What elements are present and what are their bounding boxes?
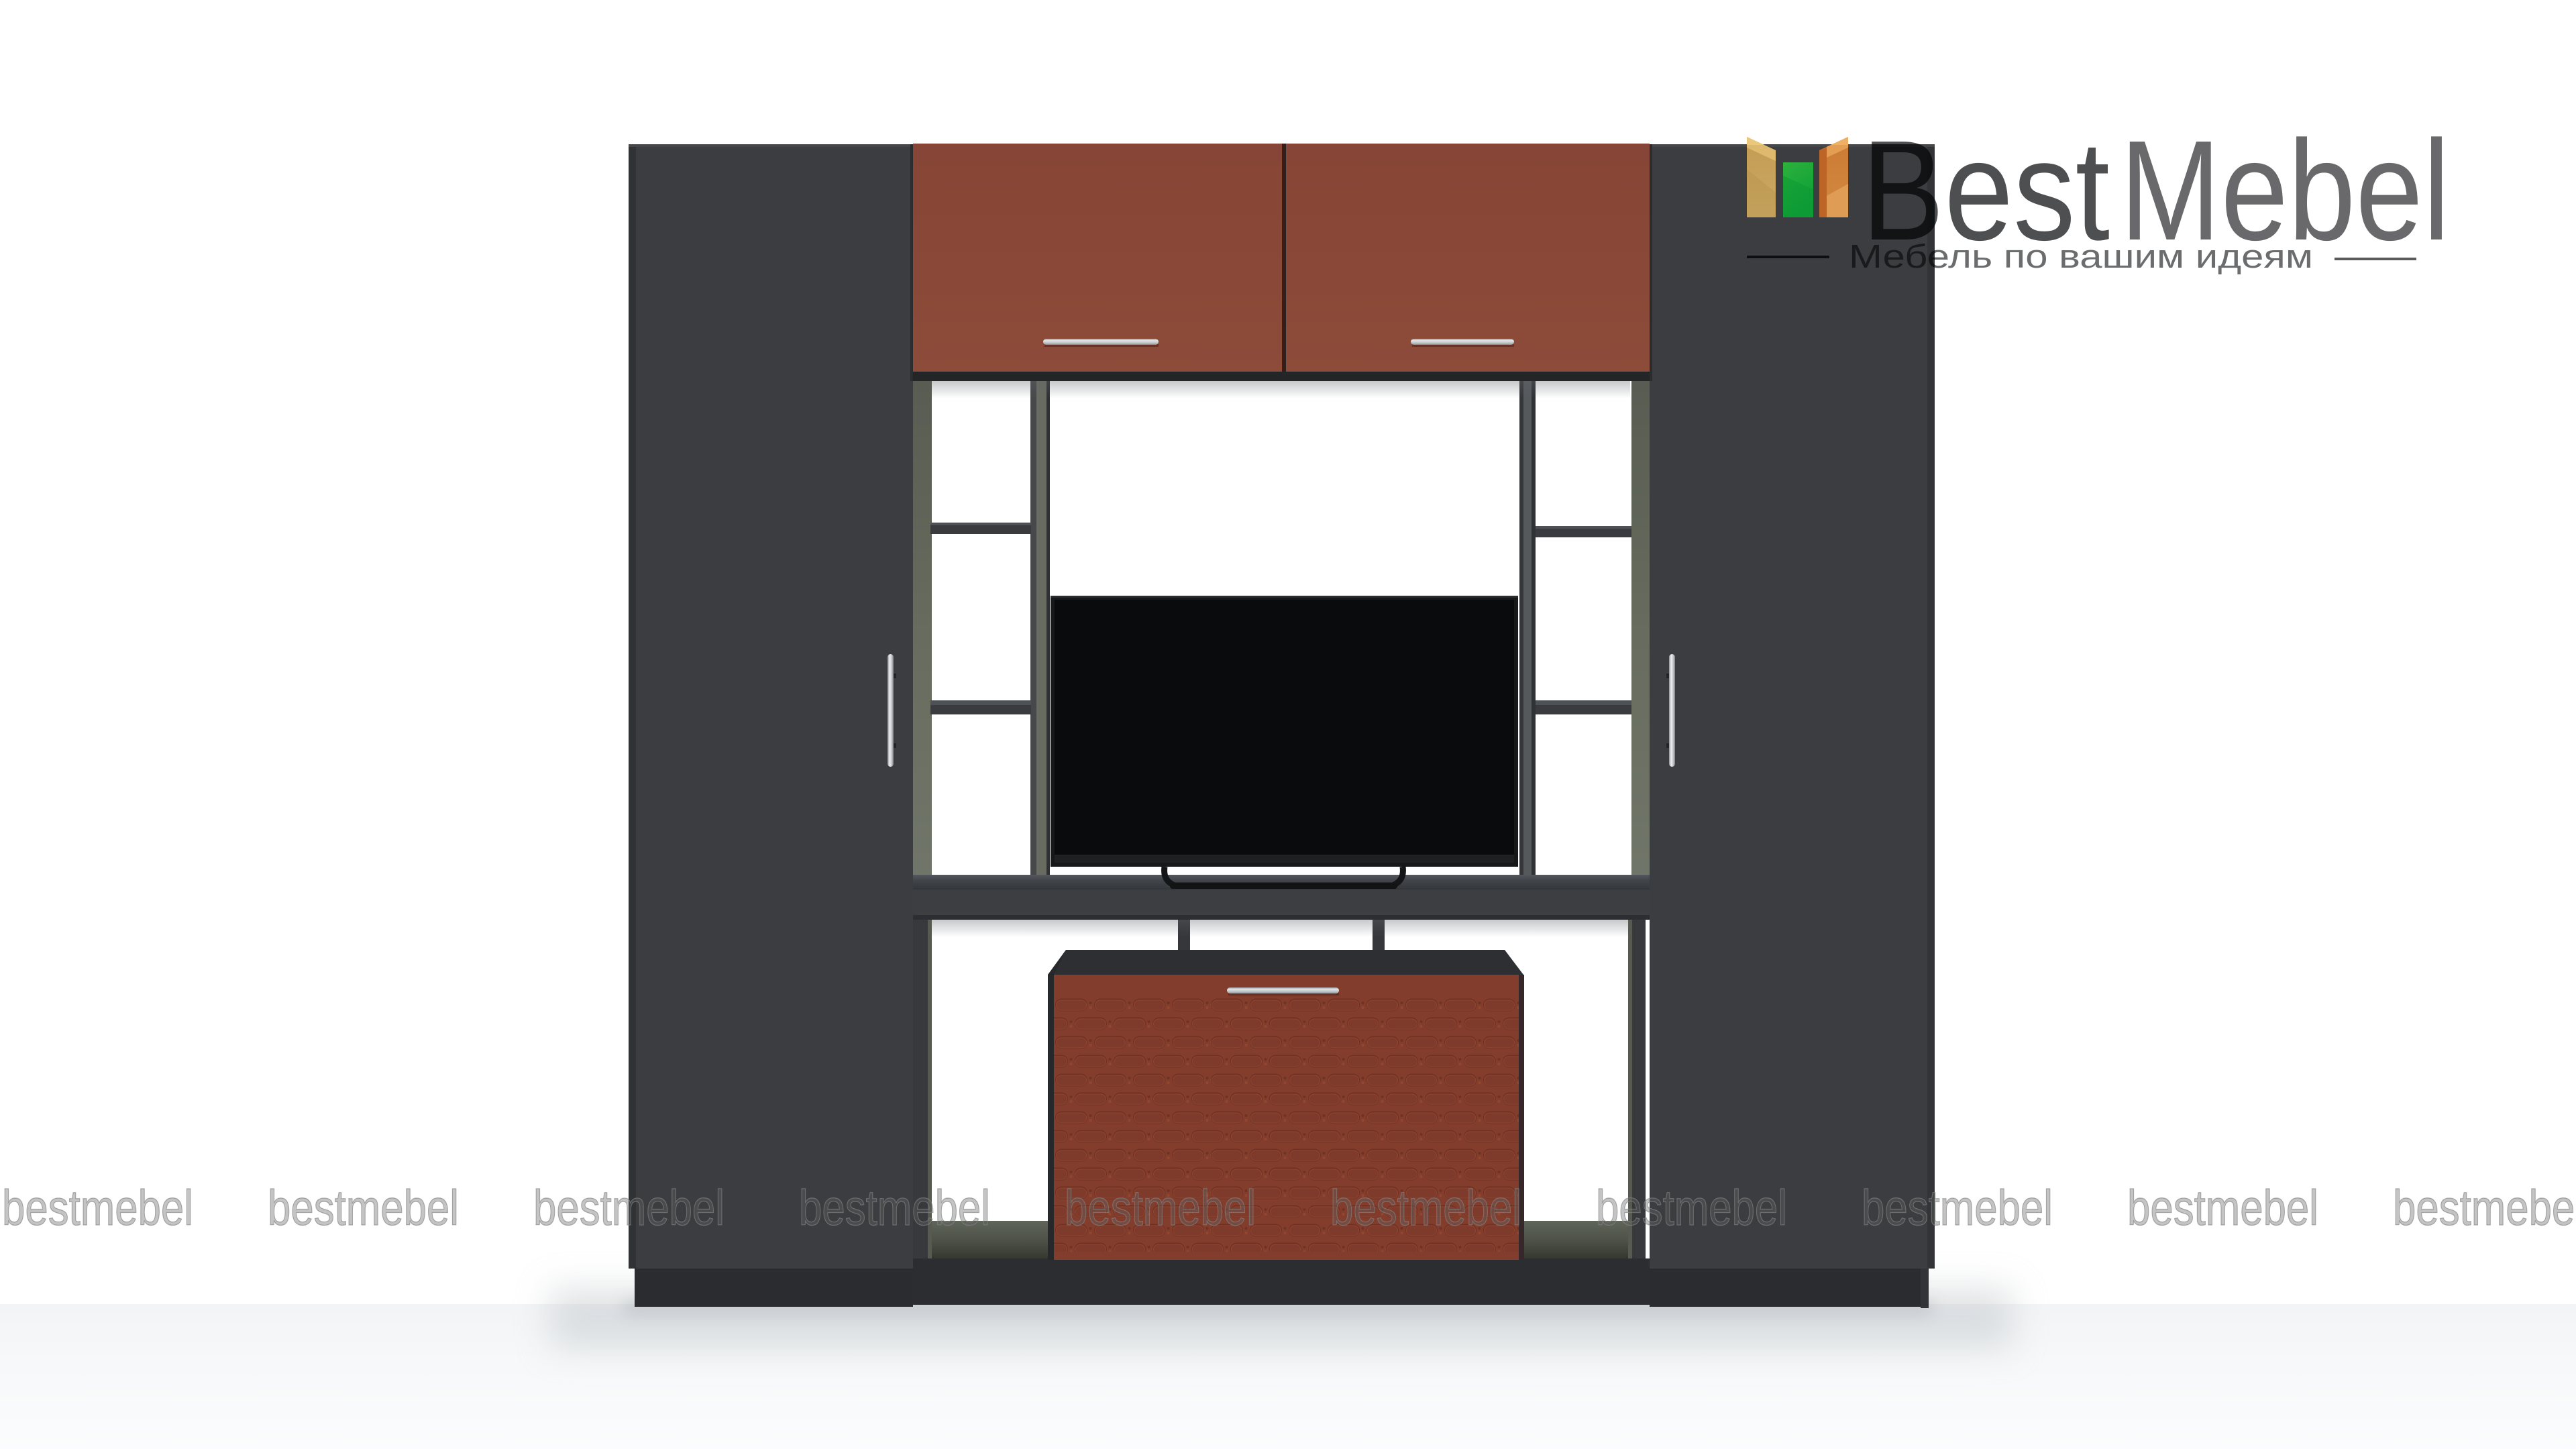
svg-text:bestmebel: bestmebel (1065, 1180, 1256, 1236)
svg-text:bestmebel: bestmebel (2393, 1180, 2576, 1236)
svg-text:bestmebel: bestmebel (533, 1180, 724, 1236)
svg-text:bestmebel: bestmebel (1596, 1180, 1787, 1236)
svg-text:bestmebel: bestmebel (2127, 1180, 2318, 1236)
svg-text:bestmebel: bestmebel (268, 1180, 459, 1236)
svg-text:bestmebel: bestmebel (1330, 1180, 1521, 1236)
svg-text:Мебель по вашим идеям: Мебель по вашим идеям (1849, 239, 2313, 275)
svg-text:bestmebel: bestmebel (799, 1180, 990, 1236)
svg-text:bestmebel: bestmebel (2, 1180, 193, 1236)
svg-text:bestmebel: bestmebel (1862, 1180, 2053, 1236)
